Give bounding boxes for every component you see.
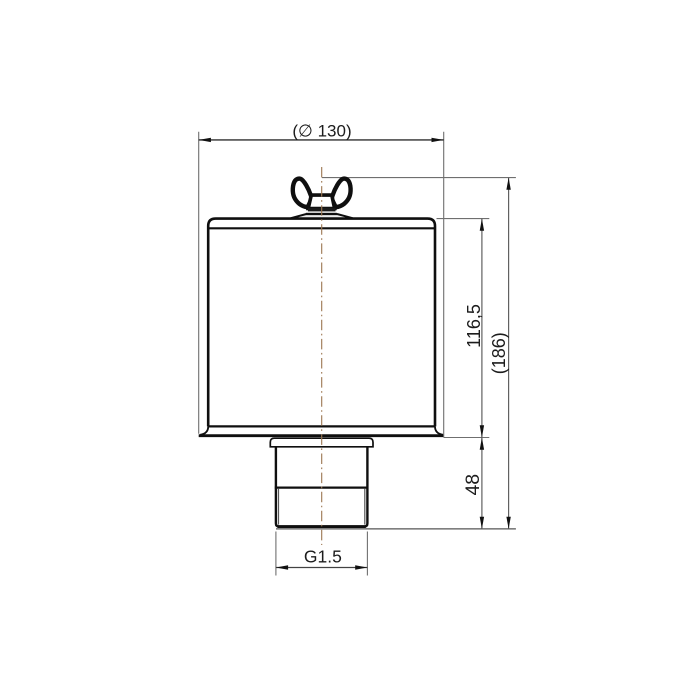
svg-text:116,5: 116,5: [464, 304, 484, 348]
svg-text:48: 48: [462, 474, 484, 496]
svg-text:(186): (186): [489, 332, 509, 374]
svg-text:G1.5: G1.5: [304, 547, 342, 567]
svg-text:(∅ 130): (∅ 130): [292, 122, 351, 141]
